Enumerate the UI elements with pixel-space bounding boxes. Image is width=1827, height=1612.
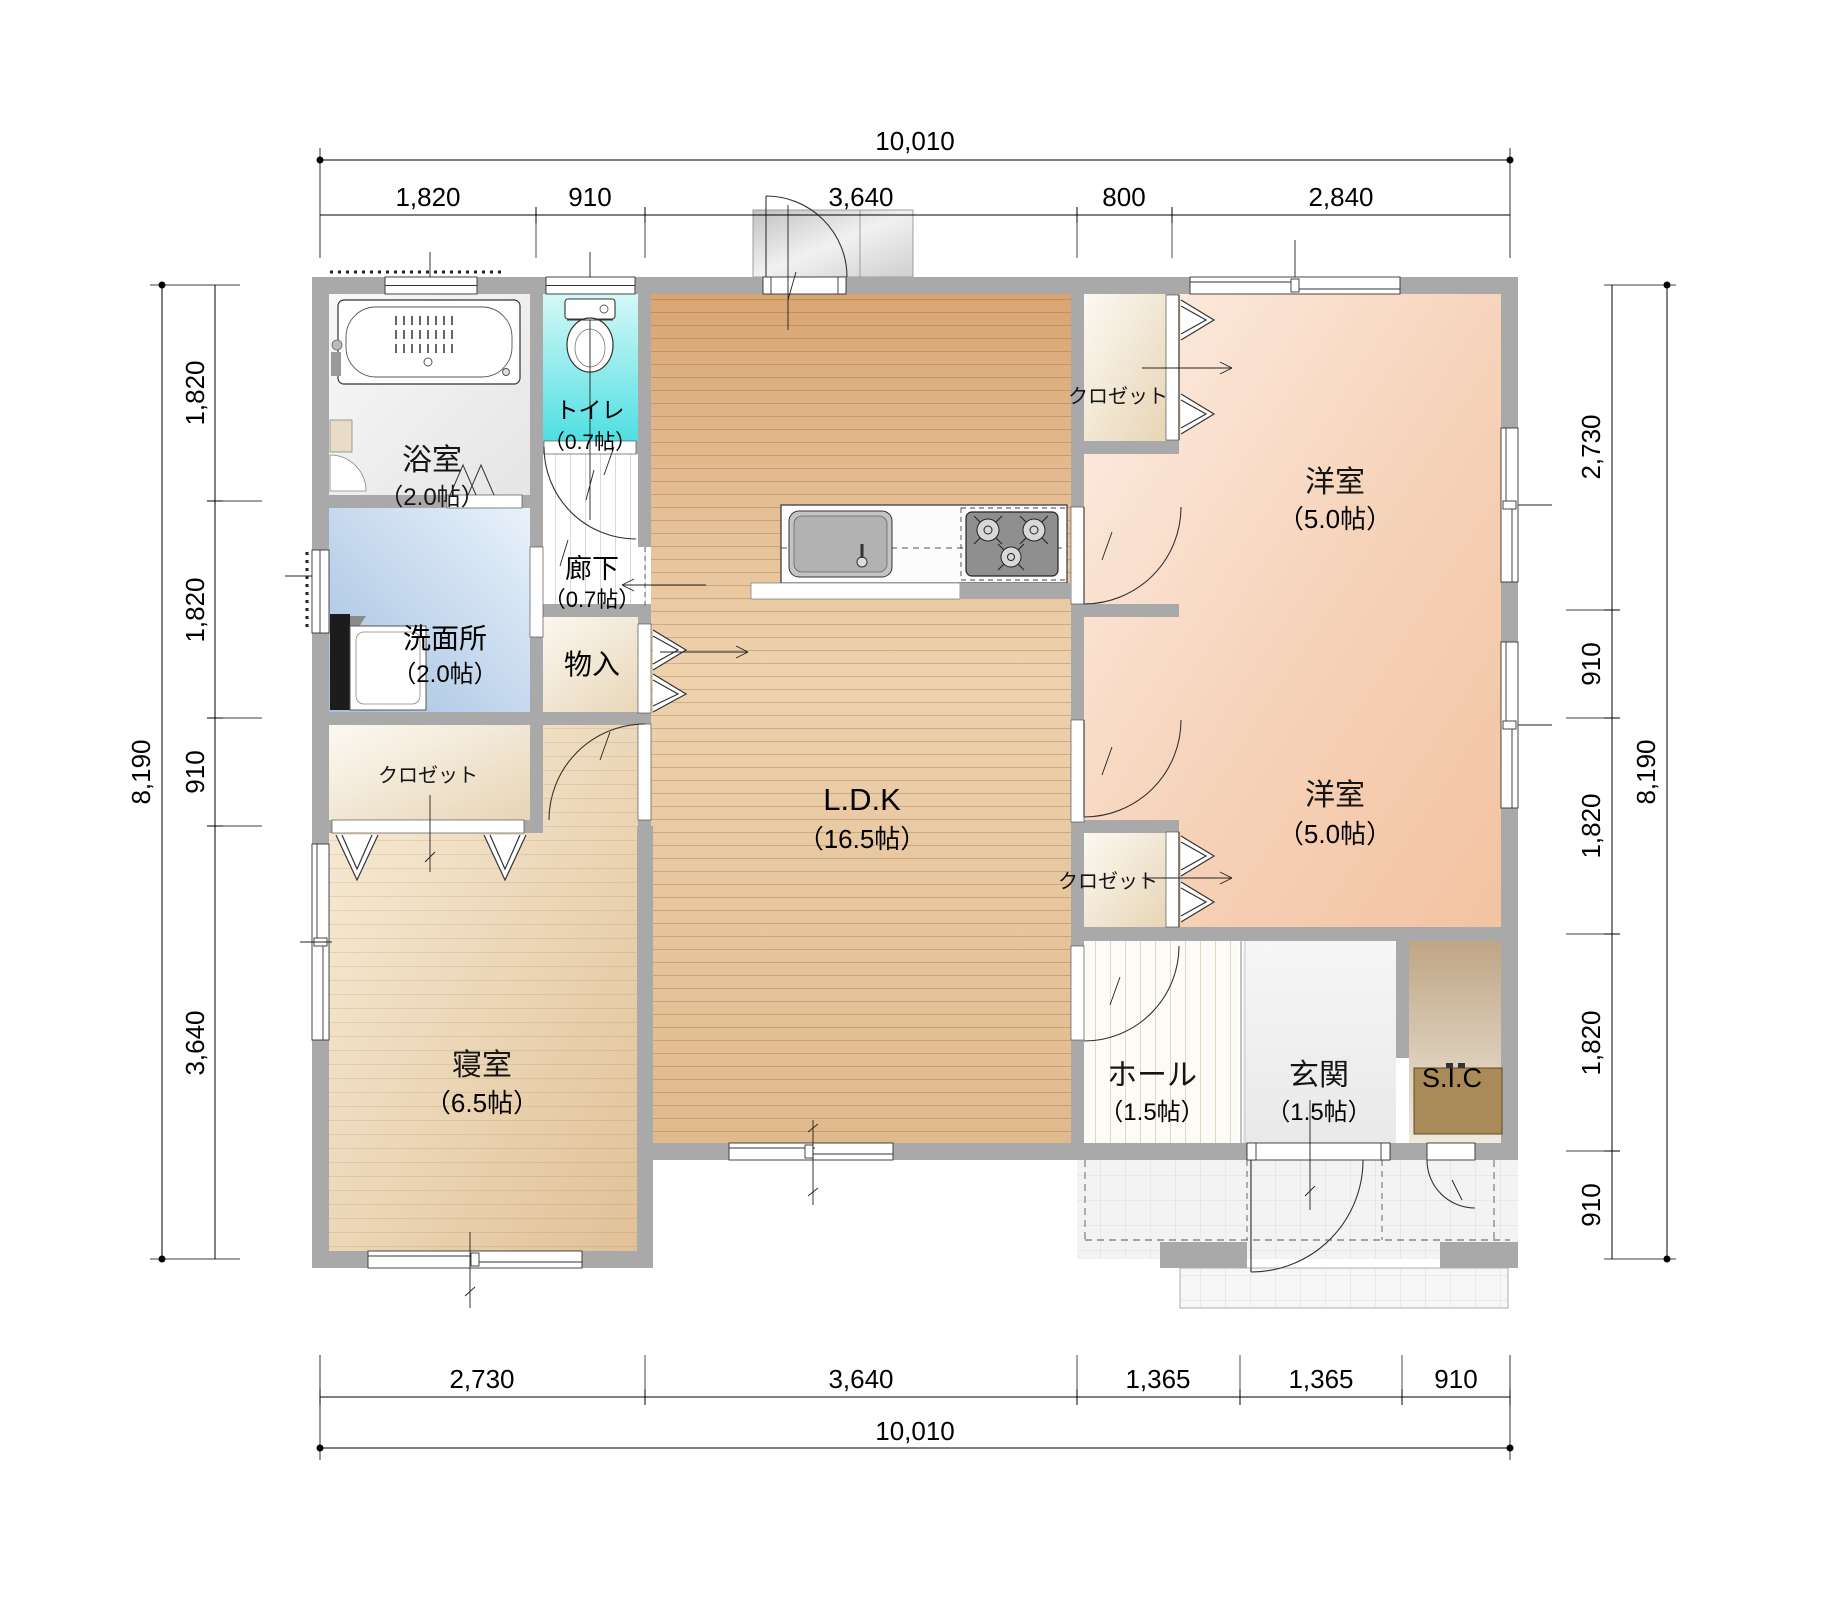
dim-left-seg1: 1,820 — [180, 577, 210, 642]
label-sic: S.I.C — [1422, 1063, 1482, 1093]
dim-bottom: 2,730 3,640 1,365 1,365 910 10,010 — [317, 1355, 1513, 1460]
western1-side-window — [1501, 428, 1518, 582]
dim-left-total: 8,190 — [126, 739, 156, 804]
dim-right-seg2: 1,820 — [1576, 793, 1606, 858]
label-entrance-area: （1.5帖） — [1266, 1099, 1371, 1126]
back-entry-alcove — [753, 210, 913, 277]
washroom-window — [312, 550, 329, 633]
label-hall: ホール — [1107, 1059, 1197, 1092]
dim-top-seg3: 800 — [1102, 182, 1145, 212]
label-entrance: 玄関 — [1289, 1059, 1349, 1092]
label-corridor-area: （0.7帖） — [544, 587, 641, 612]
dim-right-seg3: 1,820 — [1576, 1010, 1606, 1075]
dim-top: 10,010 1,820 910 3,640 800 2,840 — [317, 126, 1513, 258]
floor-plan-drawing: 浴室 （2.0帖） トイレ （0.7帖） 廊下 （0.7帖） 洗面所 （2.0帖… — [0, 0, 1827, 1612]
label-bedroom-area: （6.5帖） — [425, 1088, 539, 1118]
dim-bottom-seg2: 1,365 — [1125, 1364, 1190, 1394]
label-washroom: 洗面所 — [403, 623, 487, 654]
bathtub — [338, 300, 520, 384]
label-ldk-area: （16.5帖） — [798, 824, 927, 854]
label-washroom-area: （2.0帖） — [392, 661, 497, 688]
dim-left-seg3: 3,640 — [180, 1010, 210, 1075]
room-closet1-floor — [1084, 294, 1166, 441]
label-storage: 物入 — [564, 649, 620, 680]
label-ldk: L.D.K — [823, 782, 901, 817]
dim-right-seg1: 910 — [1576, 642, 1606, 685]
dim-left-seg2: 910 — [180, 750, 210, 793]
dim-bottom-seg0: 2,730 — [449, 1364, 514, 1394]
dim-top-seg2: 3,640 — [828, 182, 893, 212]
western2-side-window — [1501, 642, 1518, 808]
label-western2: 洋室 — [1305, 779, 1365, 812]
dim-left-seg0: 1,820 — [180, 360, 210, 425]
label-bath: 浴室 — [402, 444, 462, 477]
label-closet1: クロゼット — [1068, 385, 1168, 408]
label-western1-area: （5.0帖） — [1278, 504, 1392, 534]
back-door — [763, 277, 846, 294]
dim-bottom-seg1: 3,640 — [828, 1364, 893, 1394]
dim-top-total: 10,010 — [875, 126, 955, 156]
label-closet-bedroom: クロゼット — [378, 764, 478, 787]
dim-right-seg0: 2,730 — [1576, 414, 1606, 479]
ldk-bottom-window — [729, 1143, 893, 1160]
dim-top-seg4: 2,840 — [1308, 182, 1373, 212]
label-closet2: クロゼット — [1058, 870, 1158, 893]
label-bath-area: （2.0帖） — [379, 484, 484, 511]
sic-door-sill — [1427, 1143, 1475, 1160]
label-bedroom: 寝室 — [452, 1049, 512, 1082]
stove — [966, 512, 1058, 576]
dim-right-seg4: 910 — [1576, 1183, 1606, 1226]
label-western1: 洋室 — [1305, 466, 1365, 499]
dim-bottom-seg4: 910 — [1434, 1364, 1477, 1394]
toilet-window — [546, 277, 635, 294]
dim-bottom-total: 10,010 — [875, 1416, 955, 1446]
label-toilet-area: （0.7帖） — [544, 431, 636, 454]
dim-left: 8,190 1,820 1,820 910 3,640 — [126, 282, 262, 1262]
entrance-door-sill — [1247, 1143, 1390, 1160]
floor-plan-page: 浴室 （2.0帖） トイレ （0.7帖） 廊下 （0.7帖） 洗面所 （2.0帖… — [0, 0, 1827, 1612]
label-western2-area: （5.0帖） — [1278, 819, 1392, 849]
bath-window — [385, 277, 477, 294]
dim-top-seg1: 910 — [568, 182, 611, 212]
dim-right: 2,730 910 1,820 1,820 910 8,190 — [1566, 282, 1676, 1262]
label-corridor: 廊下 — [565, 554, 619, 584]
kitchen-counter — [751, 505, 1071, 599]
western1-top-window — [1190, 277, 1400, 294]
label-hall-area: （1.5帖） — [1099, 1099, 1204, 1126]
porch-step-tiles — [1180, 1268, 1508, 1308]
room-ldk-planks — [645, 285, 1077, 1151]
dim-top-seg0: 1,820 — [395, 182, 460, 212]
dim-bottom-seg3: 1,365 — [1288, 1364, 1353, 1394]
label-toilet: トイレ — [556, 397, 625, 423]
bedroom-bottom-window — [368, 1251, 582, 1268]
dim-right-total: 8,190 — [1631, 739, 1661, 804]
